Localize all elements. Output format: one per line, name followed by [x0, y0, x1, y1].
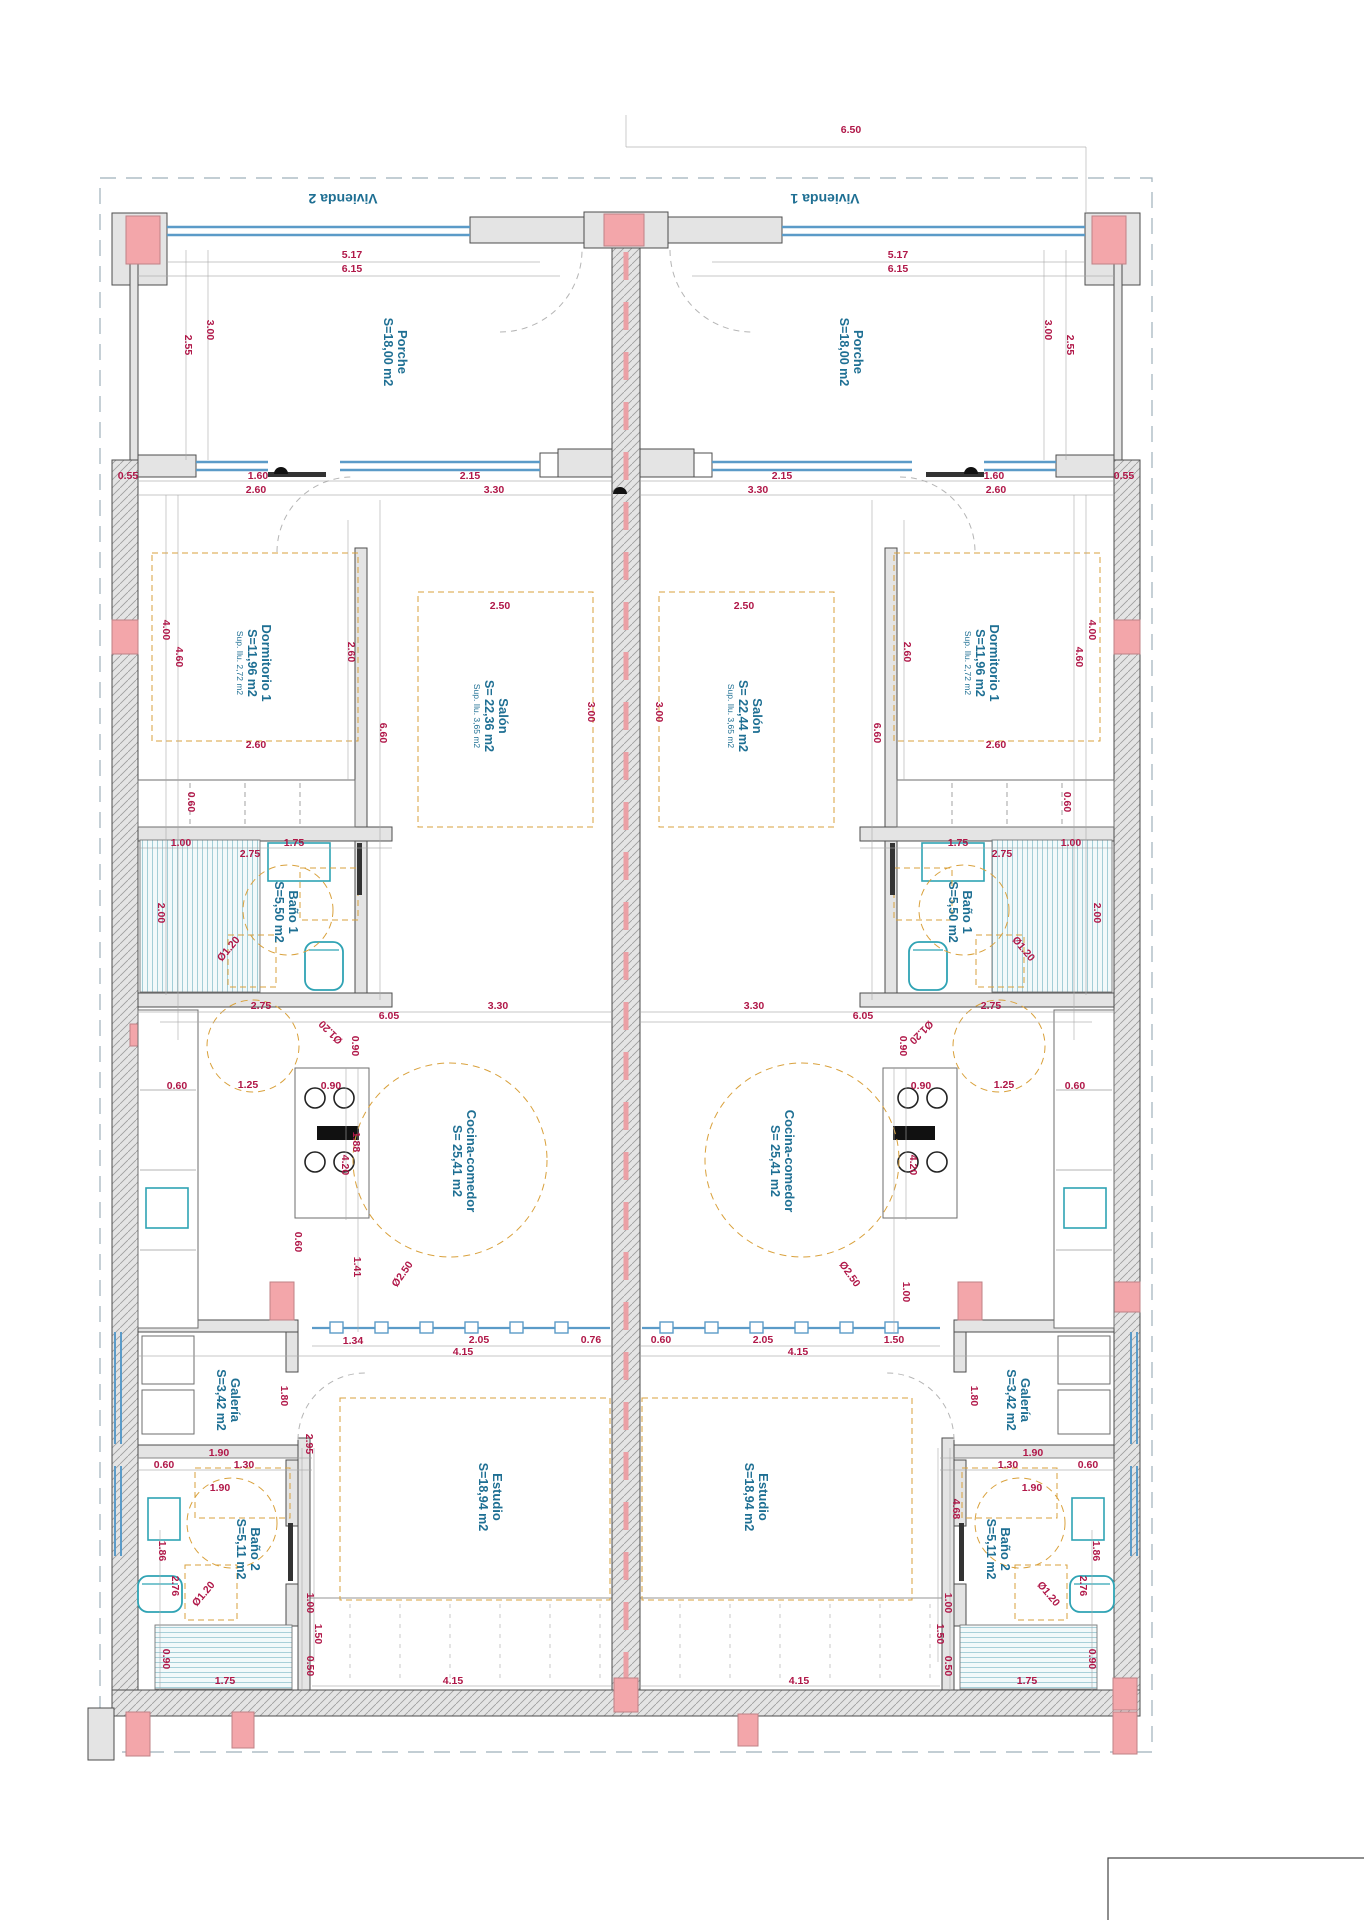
dimension-label: 1.88: [350, 1132, 362, 1153]
dimension-label: 2.60: [986, 484, 1007, 496]
door-leaf: [288, 1523, 293, 1581]
dimension-label: 3.30: [744, 1000, 765, 1012]
floorplan-drawing: 6.505.176.155.176.153.002.553.002.550.55…: [0, 0, 1364, 1920]
dimension-label: 2.55: [1064, 335, 1076, 356]
column: [614, 1678, 638, 1712]
casework: [897, 780, 1114, 827]
dimension-label: 0.90: [897, 1036, 909, 1057]
window-end-box: [694, 453, 712, 477]
title-block: [1108, 1858, 1364, 1920]
room-label: Baño 1S=5,50 m2: [946, 881, 975, 943]
room-label: Cocina-comedorS= 25,41 m2: [768, 1110, 797, 1213]
partition-wall: [138, 455, 196, 477]
partition-wall: [558, 449, 612, 477]
dimension-label: 1.90: [1023, 1447, 1044, 1459]
room-name: Salón: [750, 698, 765, 733]
room-name: Estudio: [756, 1473, 771, 1521]
dimension-label: 3.30: [748, 484, 769, 496]
door-leaf: [357, 843, 362, 895]
partition-wall: [286, 1332, 298, 1372]
casework: [138, 780, 355, 827]
dimension-label: 3.30: [488, 1000, 509, 1012]
sink: [1072, 1498, 1104, 1540]
floorplan-sheet: 6.505.176.155.176.153.002.553.002.550.55…: [0, 0, 1364, 1920]
room-label: SalónS= 22,44 m2Sup. Ilu. 3,65 m2: [726, 680, 765, 752]
unit-title: Vivienda 2: [308, 191, 377, 207]
dimension-label: 1.60: [984, 470, 1005, 482]
toilet: [909, 942, 947, 990]
dimension-label: 2.75: [981, 1000, 1002, 1012]
room-name: Salón: [496, 698, 511, 733]
dimension-label: 3.00: [585, 702, 597, 723]
column: [1113, 1712, 1137, 1754]
column: [126, 216, 160, 264]
dimension-label: 0.60: [292, 1232, 304, 1253]
room-illumination-area: Sup. Ilu. 2,72 m2: [963, 631, 973, 696]
illumination-outline: [642, 1398, 912, 1600]
room-label: Baño 1S=5,50 m2: [272, 881, 301, 943]
dimension-label: 6.60: [377, 723, 389, 744]
dimension-label: 1.75: [284, 837, 305, 849]
dimension-label: 1.41: [351, 1257, 363, 1278]
door-swing-arc: [277, 477, 352, 552]
dimension-label: 2.95: [303, 1434, 315, 1455]
dimension-label: 4.68: [950, 1499, 962, 1520]
carpentry-marker: [274, 467, 288, 474]
dimension-label: 1.50: [934, 1624, 946, 1645]
room-label: EstudioS=18,94 m2: [742, 1463, 771, 1532]
room-label: SalónS= 22,36 m2Sup. Ilu. 3,65 m2: [472, 680, 511, 752]
room-area: S= 22,44 m2: [736, 680, 750, 752]
room-area: S=3,42 m2: [214, 1369, 228, 1431]
dimension-label: 1.50: [312, 1624, 324, 1645]
dimension-label: Ø1.20: [190, 1579, 218, 1609]
dimension-label: 2.76: [1077, 1576, 1089, 1597]
dimension-label: 5.17: [888, 249, 909, 261]
dimension-label: 2.60: [246, 484, 267, 496]
dimension-label: 2.75: [240, 848, 261, 860]
dimension-label: 2.05: [469, 1334, 490, 1346]
dimension-label: 1.86: [156, 1541, 168, 1562]
casework: [138, 1010, 198, 1328]
dimension-label: 1.30: [234, 1459, 255, 1471]
sink: [1064, 1188, 1106, 1228]
dimension-label: 0.50: [942, 1656, 954, 1677]
room-name: Cocina-comedor: [782, 1110, 797, 1213]
column: [270, 1282, 294, 1320]
dimension-label: 4.15: [788, 1346, 809, 1358]
dimension-label: 0.60: [1078, 1459, 1099, 1471]
dimension-label: 0.60: [651, 1334, 672, 1346]
dimension-label: 0.90: [349, 1036, 361, 1057]
dimension-label: 0.90: [321, 1080, 342, 1092]
dimension-label: 1.90: [210, 1482, 231, 1494]
dimension-label: 0.55: [118, 470, 139, 482]
dimension-label: Ø1.20: [1035, 1579, 1063, 1609]
room-label: Baño 2S=5,11 m2: [984, 1519, 1013, 1580]
partition-wall: [130, 247, 138, 460]
sink: [146, 1188, 188, 1228]
dimension-label: 2.60: [345, 642, 357, 663]
partition-wall: [470, 217, 584, 243]
room-label: GaleríaS=3,42 m2: [1004, 1369, 1033, 1431]
dimension-label: 1.90: [209, 1447, 230, 1459]
room-area: S= 25,41 m2: [450, 1125, 464, 1197]
room-area: S= 25,41 m2: [768, 1125, 782, 1197]
dimension-label: 2.50: [490, 600, 511, 612]
dimension-label: 2.00: [155, 903, 167, 924]
dimension-label: 2.15: [460, 470, 481, 482]
room-area: S=5,50 m2: [272, 881, 286, 943]
dimension-label: 2.15: [772, 470, 793, 482]
casework: [1058, 1336, 1110, 1384]
dimension-label: 0.90: [911, 1080, 932, 1092]
casework: [142, 1336, 194, 1384]
dimension-label: 4.15: [789, 1675, 810, 1687]
dimension-label: 1.00: [942, 1593, 954, 1614]
room-illumination-area: Sup. Ilu. 3,65 m2: [726, 684, 736, 749]
partition-wall: [298, 1438, 310, 1690]
wall-block: [88, 1708, 114, 1760]
column: [1114, 620, 1140, 654]
dimension-label: 0.50: [304, 1656, 316, 1677]
column: [112, 620, 138, 654]
room-label: Dormitorio 1S=11,96 m2Sup. Ilu. 2,72 m2: [963, 624, 1002, 701]
room-label: PorcheS=18,00 m2: [837, 318, 866, 387]
dimension-label: 3.30: [484, 484, 505, 496]
dimension-label: 1.50: [884, 1334, 905, 1346]
room-label: EstudioS=18,94 m2: [476, 1463, 505, 1532]
dimension-label: 1.25: [238, 1079, 259, 1091]
clearance-circle: [353, 1063, 547, 1257]
room-name: Baño 1: [286, 890, 301, 933]
partition-wall: [942, 1438, 954, 1690]
dimension-label: 6.15: [342, 263, 363, 275]
dimension-label: 4.00: [1086, 620, 1098, 641]
dimension-label: 0.60: [167, 1080, 188, 1092]
room-label: Baño 2S=5,11 m2: [234, 1519, 263, 1580]
dimension-label: 2.05: [753, 1334, 774, 1346]
carpentry-marker: [964, 467, 978, 474]
partition-wall: [954, 1332, 966, 1372]
dimension-label: 4.15: [443, 1675, 464, 1687]
dimension-label: 6.50: [841, 124, 862, 136]
title-block-corner: [1108, 1858, 1364, 1920]
room-name: Baño 2: [998, 1527, 1013, 1570]
column: [958, 1282, 982, 1320]
dimension-label: 0.76: [581, 1334, 602, 1346]
room-name: Porche: [851, 330, 866, 374]
room-label: PorcheS=18,00 m2: [381, 318, 410, 387]
illumination-outline: [962, 1468, 1057, 1518]
dimension-label: 0.90: [160, 1649, 172, 1670]
illumination-outline: [340, 1398, 610, 1600]
dimension-label: 2.76: [169, 1576, 181, 1597]
dimension-label: Ø2.50: [836, 1259, 862, 1289]
partition-wall: [1114, 247, 1122, 460]
partition-wall: [1056, 455, 1114, 477]
dimension-label: 4.00: [160, 620, 172, 641]
room-name: Dormitorio 1: [259, 624, 274, 701]
room-area: S=11,96 m2: [973, 629, 987, 697]
dimension-label: 1.75: [948, 837, 969, 849]
room-name: Baño 2: [248, 1527, 263, 1570]
clearance-circle: [705, 1063, 899, 1257]
dimension-label: 1.00: [304, 1593, 316, 1614]
dimension-label: 2.60: [986, 739, 1007, 751]
door-swing-arc: [900, 477, 975, 552]
sink: [148, 1498, 180, 1540]
casework: [142, 1390, 194, 1434]
dimension-label: 1.86: [1090, 1541, 1102, 1562]
partition-wall: [954, 1584, 966, 1626]
dimension-label: 1.75: [1017, 1675, 1038, 1687]
dimension-label: 0.60: [154, 1459, 175, 1471]
toilet: [305, 942, 343, 990]
dimension-label: 4.20: [907, 1155, 919, 1176]
room-area: S=5,11 m2: [984, 1519, 998, 1580]
dimension-label: 0.55: [1114, 470, 1135, 482]
room-area: S=3,42 m2: [1004, 1369, 1018, 1431]
dimension-label: 1.80: [968, 1386, 980, 1407]
room-label: GaleríaS=3,42 m2: [214, 1369, 243, 1431]
room-name: Cocina-comedor: [464, 1110, 479, 1213]
dimension-label: 3.00: [204, 320, 216, 341]
partition-wall: [885, 548, 897, 1003]
door-leaf: [959, 1523, 964, 1581]
dimension-label: 1.75: [215, 1675, 236, 1687]
room-area: S=18,00 m2: [837, 318, 851, 387]
dimension-label: 5.17: [342, 249, 363, 261]
dimension-label: 2.50: [734, 600, 755, 612]
dimension-label: 1.90: [1022, 1482, 1043, 1494]
dimension-label: 0.90: [1086, 1649, 1098, 1670]
partition-wall: [286, 1584, 298, 1626]
dimension-label: 2.75: [992, 848, 1013, 860]
room-label: Cocina-comedorS= 25,41 m2: [450, 1110, 479, 1213]
dimension-label: 6.05: [379, 1010, 400, 1022]
dimension-label: Ø2.50: [389, 1259, 415, 1289]
dimension-label: 1.25: [994, 1079, 1015, 1091]
door-leaf: [890, 843, 895, 895]
column: [1114, 1282, 1140, 1312]
room-name: Porche: [395, 330, 410, 374]
room-area: S=5,50 m2: [946, 881, 960, 943]
dimension-label: 2.60: [246, 739, 267, 751]
partition-wall: [640, 449, 694, 477]
dimension-label: 2.00: [1091, 903, 1103, 924]
dimension-label: 2.75: [251, 1000, 272, 1012]
dimension-label: 1.00: [171, 837, 192, 849]
dimension-label: 1.60: [248, 470, 269, 482]
dimension-label: 0.60: [1061, 792, 1073, 813]
dimension-label: 3.00: [1042, 320, 1054, 341]
column: [738, 1714, 758, 1746]
dimension-label: 0.60: [185, 792, 197, 813]
dimension-label: 1.00: [900, 1282, 912, 1303]
dimension-label: 1.80: [278, 1386, 290, 1407]
door-swing-arc: [298, 1373, 365, 1440]
column: [232, 1712, 254, 1748]
room-name: Baño 1: [960, 890, 975, 933]
room-label: Dormitorio 1S=11,96 m2Sup. Ilu. 2,72 m2: [235, 624, 274, 701]
dimension-label: 4.15: [453, 1346, 474, 1358]
room-area: S=18,94 m2: [476, 1463, 490, 1532]
room-name: Estudio: [490, 1473, 505, 1521]
casework: [1054, 1010, 1114, 1328]
room-area: S= 22,36 m2: [482, 680, 496, 752]
dimension-label: 6.05: [853, 1010, 874, 1022]
door-swing-arc: [887, 1373, 954, 1440]
room-area: S=18,94 m2: [742, 1463, 756, 1532]
partition-wall: [668, 217, 782, 243]
room-area: S=11,96 m2: [245, 629, 259, 697]
dimension-label: 1.00: [1061, 837, 1082, 849]
dimension-label: 4.60: [173, 647, 185, 668]
dimension-label: 6.60: [871, 723, 883, 744]
column: [604, 214, 644, 246]
dimension-label: 1.30: [998, 1459, 1019, 1471]
room-name: Galería: [228, 1378, 243, 1423]
dimension-label: 4.60: [1073, 647, 1085, 668]
room-illumination-area: Sup. Ilu. 3,65 m2: [472, 684, 482, 749]
dimension-label: 2.60: [901, 642, 913, 663]
room-name: Dormitorio 1: [987, 624, 1002, 701]
dimension-label: 0.60: [1065, 1080, 1086, 1092]
room-area: S=18,00 m2: [381, 318, 395, 387]
window-end-box: [540, 453, 558, 477]
column: [1092, 216, 1126, 264]
column: [1113, 1678, 1137, 1710]
room-area: S=5,11 m2: [234, 1519, 248, 1580]
column: [126, 1712, 150, 1756]
casework: [1058, 1390, 1110, 1434]
partition-wall: [355, 548, 367, 1003]
dimension-label: 4.20: [339, 1155, 351, 1176]
dimension-label: 3.00: [653, 702, 665, 723]
dimension-label: 1.34: [343, 1335, 364, 1347]
room-name: Galería: [1018, 1378, 1033, 1423]
unit-title: Vivienda 1: [790, 191, 859, 207]
room-illumination-area: Sup. Ilu. 2,72 m2: [235, 631, 245, 696]
dimension-label: 2.55: [182, 335, 194, 356]
dimension-label: 6.15: [888, 263, 909, 275]
